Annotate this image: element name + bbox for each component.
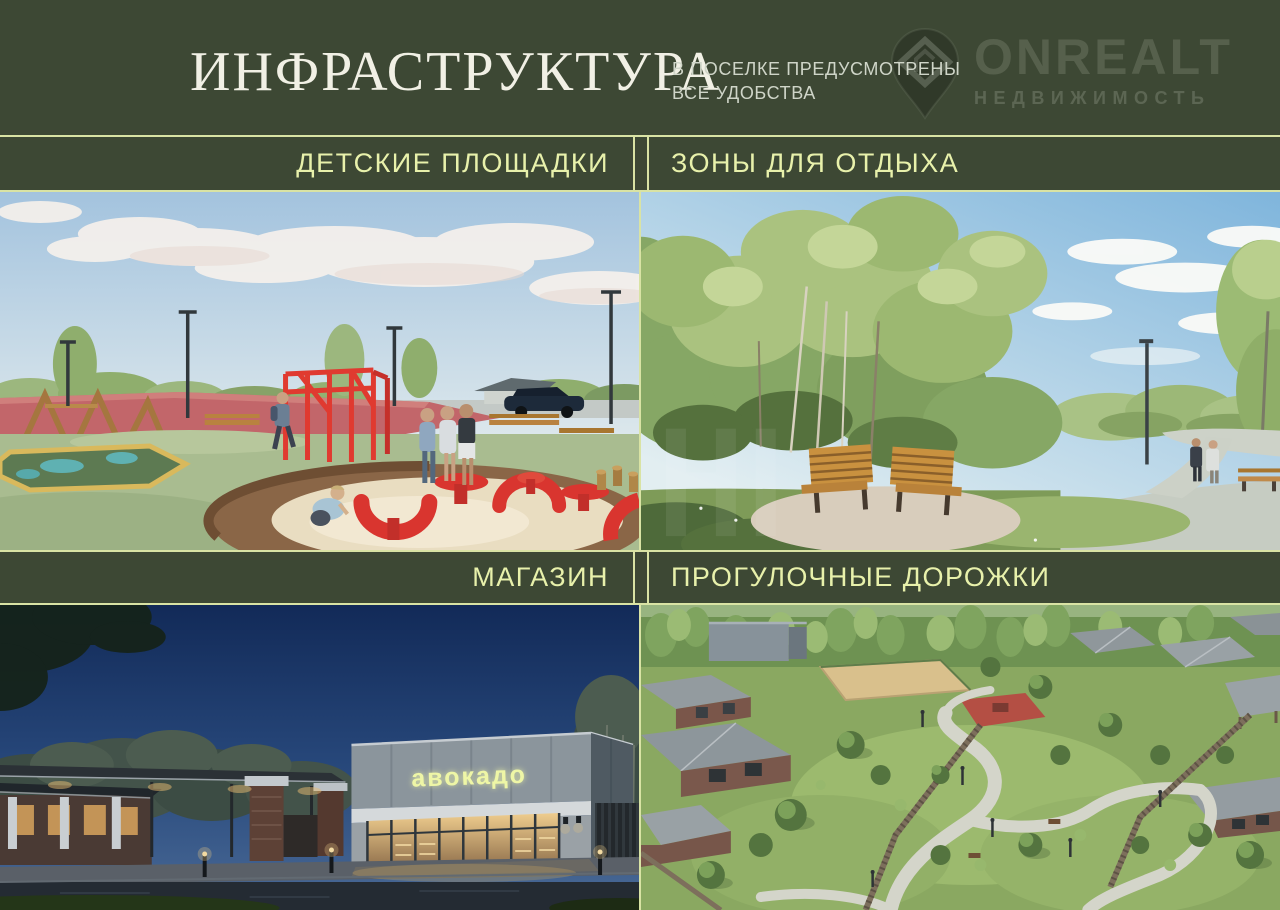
shop-building: авокадо авокадо: [351, 733, 633, 873]
photo-walking-paths: [641, 605, 1280, 910]
section-labels-top: ДЕТСКИЕ ПЛОЩАДКИ ЗОНЫ ДЛЯ ОТДЫХА: [0, 135, 1280, 192]
logo-brand: ONREALT: [974, 32, 1233, 82]
shop-sign: авокадо: [411, 761, 527, 793]
subtitle-line-2: ВСЕ УДОБСТВА: [672, 81, 961, 105]
header: ИНФРАСТРУКТУРА В ПОСЕЛКЕ ПРЕДУСМОТРЕНЫ В…: [0, 0, 1280, 135]
logo-text: ONREALT НЕДВИЖИМОСТЬ: [974, 32, 1233, 109]
photo-row-bottom: авокадо авокадо: [0, 605, 1280, 910]
label-shop: МАГАЗИН: [472, 562, 609, 593]
play-pit: [0, 446, 186, 490]
label-cell-shop: МАГАЗИН: [0, 552, 635, 603]
subtitle-line-1: В ПОСЕЛКЕ ПРЕДУСМОТРЕНЫ: [672, 57, 961, 81]
gray-building: [709, 623, 807, 661]
photo-recreation: [641, 192, 1280, 550]
label-playgrounds: ДЕТСКИЕ ПЛОЩАДКИ: [296, 148, 609, 179]
label-recreation: ЗОНЫ ДЛЯ ОТДЫХА: [671, 148, 959, 179]
label-paths: ПРОГУЛОЧНЫЕ ДОРОЖКИ: [671, 562, 1050, 593]
photo-row-top: [0, 192, 1280, 550]
infrastructure-slide: ИНФРАСТРУКТУРА В ПОСЕЛКЕ ПРЕДУСМОТРЕНЫ В…: [0, 0, 1280, 910]
section-labels-bottom: МАГАЗИН ПРОГУЛОЧНЫЕ ДОРОЖКИ: [0, 550, 1280, 605]
header-subtitle: В ПОСЕЛКЕ ПРЕДУСМОТРЕНЫ ВСЕ УДОБСТВА: [672, 57, 961, 106]
logo-tagline: НЕДВИЖИМОСТЬ: [974, 88, 1233, 109]
watermark: [666, 429, 776, 536]
page-title: ИНФРАСТРУКТУРА: [190, 44, 721, 100]
photo-shop: авокадо авокадо: [0, 605, 639, 910]
label-cell-paths: ПРОГУЛОЧНЫЕ ДОРОЖКИ: [647, 552, 1280, 603]
label-cell-recreation: ЗОНЫ ДЛЯ ОТДЫХА: [647, 137, 1280, 190]
label-cell-playgrounds: ДЕТСКИЕ ПЛОЩАДКИ: [0, 137, 635, 190]
photo-playground: [0, 192, 639, 550]
